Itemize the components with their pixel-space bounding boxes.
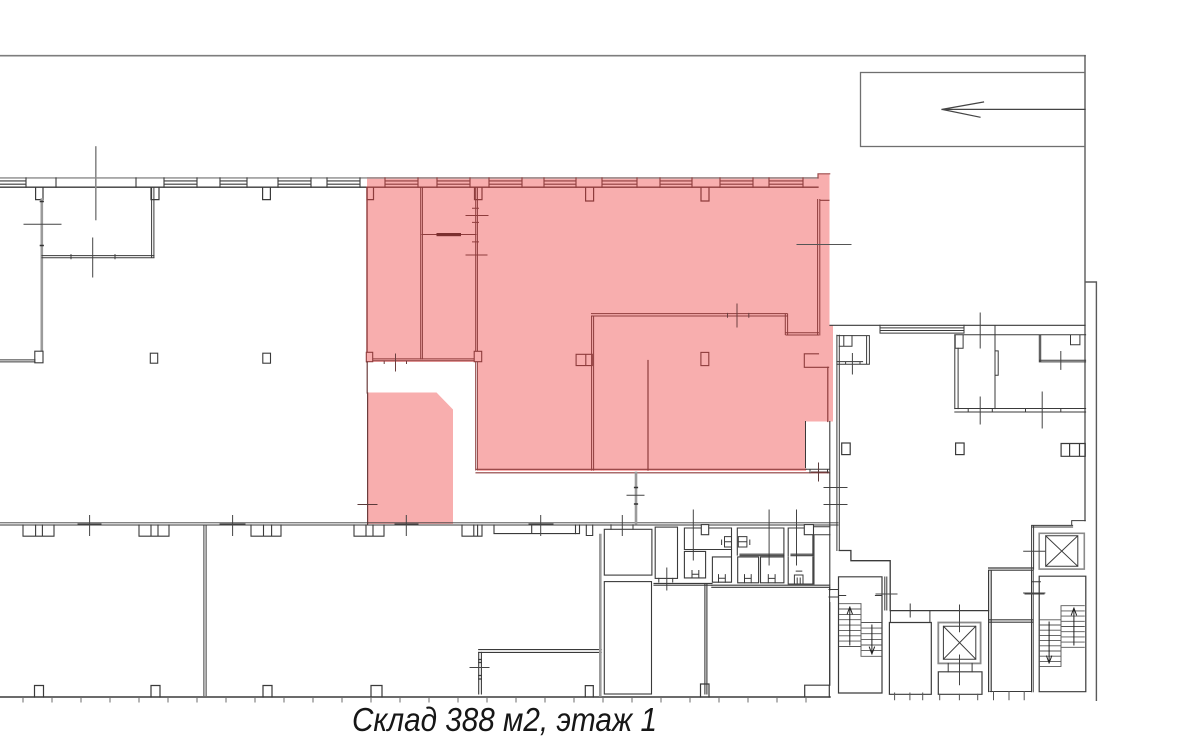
svg-text:Склад 388 м2, этаж 1: Склад 388 м2, этаж 1 [352, 702, 657, 739]
